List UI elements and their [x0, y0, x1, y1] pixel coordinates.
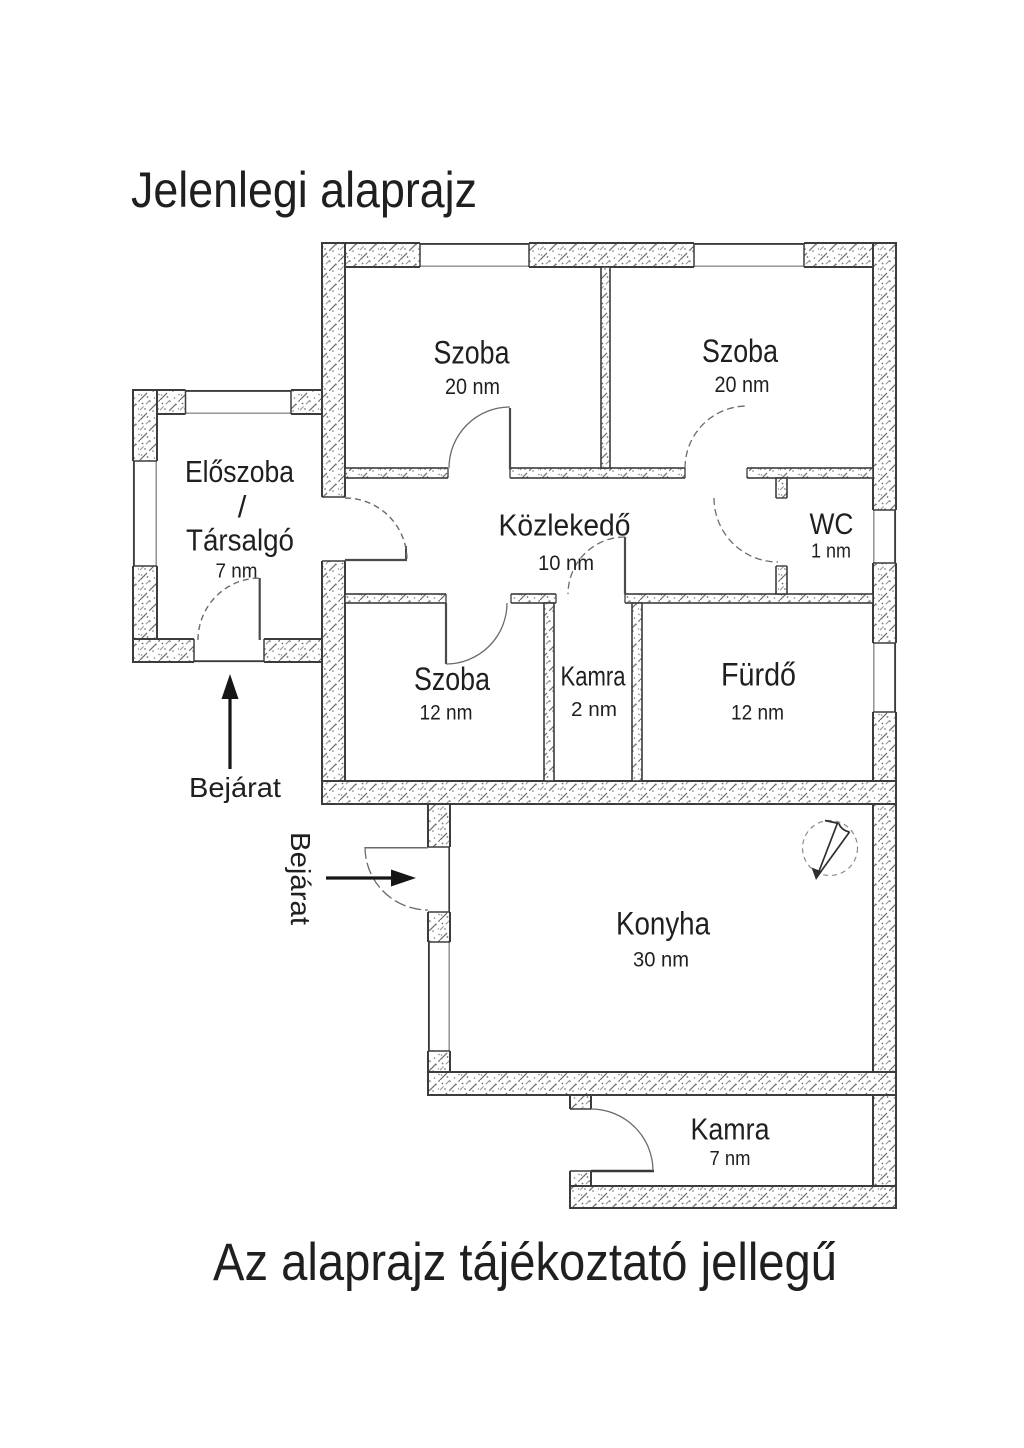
svg-text:WC: WC — [810, 508, 854, 541]
svg-text:7 nm: 7 nm — [710, 1148, 751, 1170]
svg-text:Fürdő: Fürdő — [721, 657, 796, 693]
svg-text:7 nm: 7 nm — [216, 561, 258, 583]
svg-text:Szoba: Szoba — [414, 661, 490, 697]
svg-text:12 nm: 12 nm — [420, 702, 473, 725]
svg-text:2 nm: 2 nm — [571, 699, 617, 721]
svg-text:30 nm: 30 nm — [633, 949, 689, 972]
svg-text:Előszoba: Előszoba — [185, 454, 295, 489]
svg-text:Kamra: Kamra — [691, 1112, 771, 1147]
svg-text:Bejárat: Bejárat — [285, 832, 316, 925]
svg-text:20 nm: 20 nm — [445, 374, 500, 399]
svg-text:Kamra: Kamra — [561, 661, 626, 692]
svg-text:10 nm: 10 nm — [538, 552, 594, 575]
svg-text:Az alaprajz tájékoztató jelleg: Az alaprajz tájékoztató jellegű — [213, 1233, 837, 1292]
svg-text:Közlekedő: Közlekedő — [499, 508, 631, 543]
svg-text:Szoba: Szoba — [434, 335, 510, 371]
svg-text:/: / — [238, 489, 247, 524]
svg-text:Szoba: Szoba — [702, 333, 778, 369]
svg-text:Konyha: Konyha — [616, 906, 710, 942]
svg-text:20 nm: 20 nm — [715, 372, 770, 397]
svg-text:12 nm: 12 nm — [731, 702, 784, 725]
svg-text:Jelenlegi alaprajz: Jelenlegi alaprajz — [131, 162, 477, 218]
svg-text:Társalgó: Társalgó — [186, 523, 294, 558]
svg-text:Bejárat: Bejárat — [189, 772, 281, 803]
svg-text:1 nm: 1 nm — [811, 541, 851, 563]
